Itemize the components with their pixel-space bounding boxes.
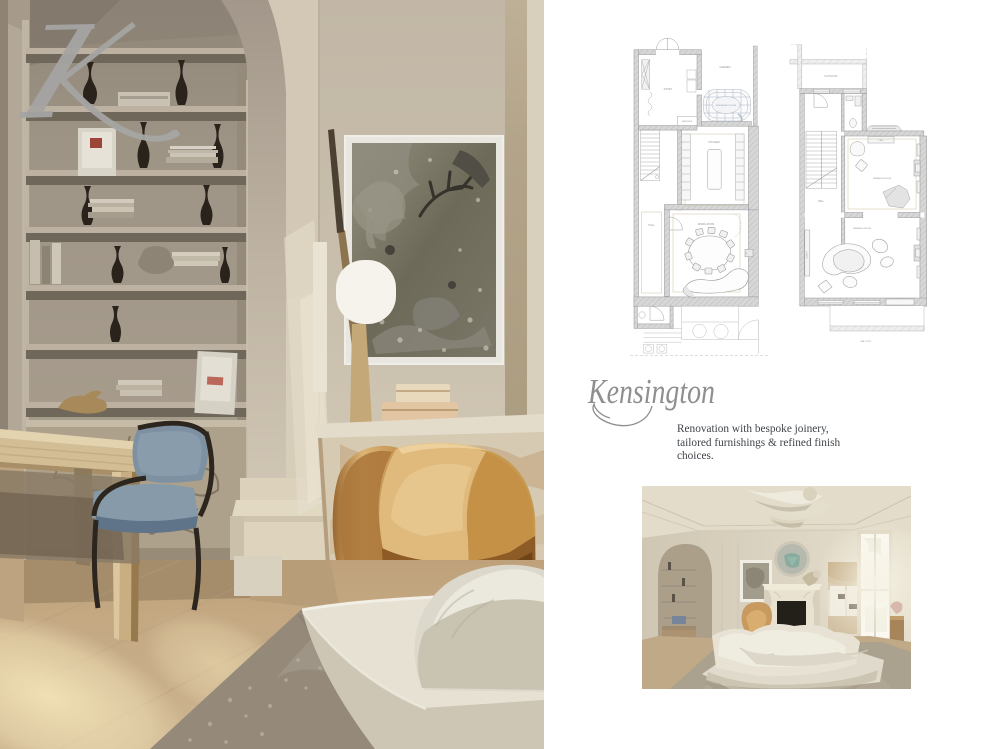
svg-text:BREAKFAST ROOM: BREAKFAST ROOM — [716, 104, 736, 107]
svg-text:FLAT ROOF: FLAT ROOF — [824, 75, 838, 78]
svg-text:GARDEN: GARDEN — [719, 65, 730, 69]
svg-text:DRAWING ROOM: DRAWING ROOM — [873, 177, 891, 180]
svg-text:STUDY: STUDY — [664, 87, 673, 91]
svg-text:Kensington: Kensington — [587, 372, 715, 411]
svg-text:DINING ROOM: DINING ROOM — [698, 223, 714, 226]
svg-text:KITCHEN: KITCHEN — [708, 140, 720, 144]
svg-text:DESK: DESK — [879, 140, 885, 142]
svg-text:JOINERY: JOINERY — [806, 250, 808, 258]
svg-text:BALCONY: BALCONY — [861, 340, 872, 343]
svg-text:DRAWING ROOM: DRAWING ROOM — [853, 227, 871, 230]
svg-text:HALL: HALL — [649, 224, 656, 227]
svg-text:HALL: HALL — [818, 200, 825, 203]
svg-text:FP: FP — [745, 253, 747, 255]
svg-text:SERVICES: SERVICES — [682, 121, 693, 123]
